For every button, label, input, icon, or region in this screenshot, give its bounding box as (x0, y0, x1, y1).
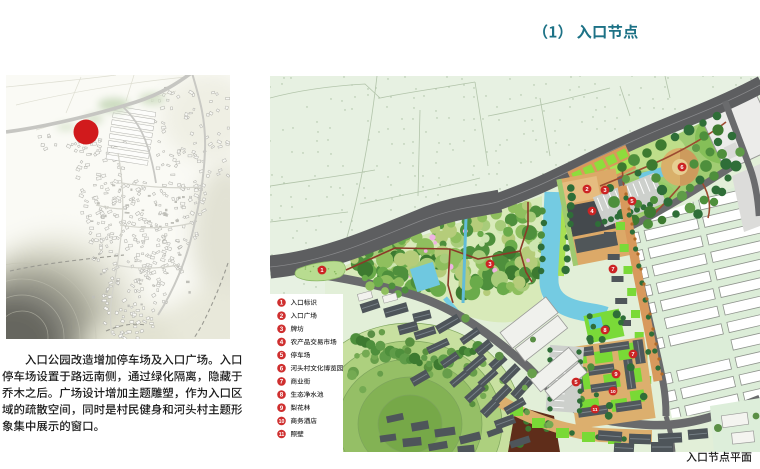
svg-text:9: 9 (280, 405, 284, 412)
svg-text:10: 10 (279, 419, 285, 425)
svg-text:4: 4 (280, 339, 284, 346)
svg-text:7: 7 (280, 379, 284, 386)
svg-text:10: 10 (610, 389, 616, 395)
svg-text:3: 3 (280, 326, 284, 333)
svg-text:2: 2 (280, 313, 284, 320)
svg-text:11: 11 (279, 432, 285, 438)
svg-text:6: 6 (280, 365, 284, 372)
svg-text:7: 7 (631, 352, 634, 358)
svg-text:5: 5 (280, 352, 284, 359)
svg-text:1: 1 (280, 300, 284, 307)
svg-text:11: 11 (592, 407, 597, 413)
svg-text:7: 7 (611, 267, 614, 273)
svg-text:8: 8 (280, 392, 284, 399)
svg-text:2: 2 (585, 187, 588, 193)
